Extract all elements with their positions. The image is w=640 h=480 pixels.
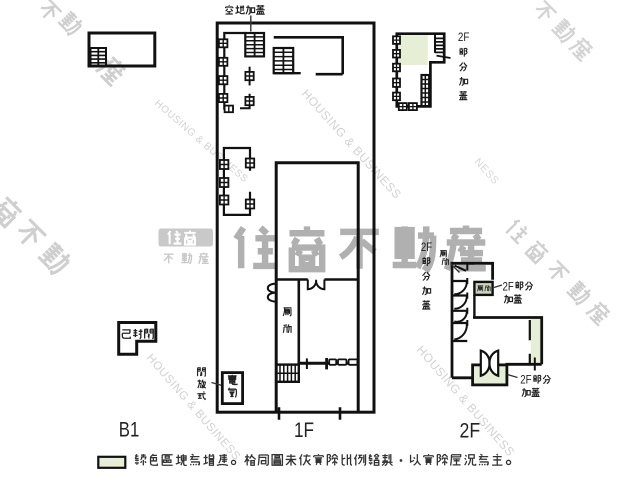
svg-text:HOUSING & BUSINESS: HOUSING & BUSINESS [144, 352, 243, 463]
svg-text:2F: 2F [458, 32, 470, 44]
svg-text:2F: 2F [460, 420, 481, 443]
svg-text:2F: 2F [520, 375, 531, 387]
svg-text:2F: 2F [503, 281, 514, 293]
svg-text:2F: 2F [421, 242, 432, 254]
svg-text:B1: B1 [119, 419, 140, 442]
svg-text:HOUSING & BUSINESS: HOUSING & BUSINESS [299, 87, 405, 202]
svg-text:1F: 1F [294, 419, 314, 442]
svg-text:NESS: NESS [472, 156, 502, 187]
svg-text:HOUSING & BUSINESS: HOUSING & BUSINESS [152, 98, 250, 185]
